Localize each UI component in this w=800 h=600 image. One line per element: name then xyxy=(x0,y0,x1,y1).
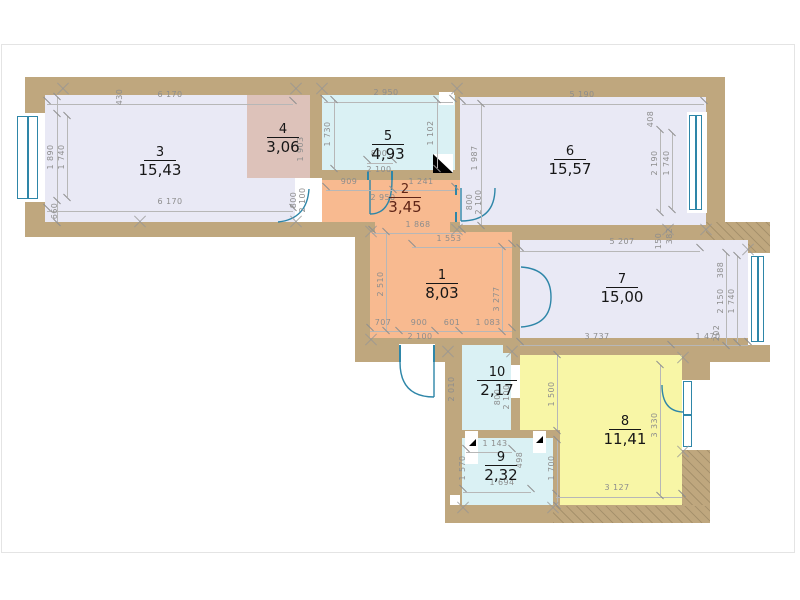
dim-label-room5-left: 1 730 xyxy=(324,122,332,147)
junction-cross xyxy=(455,500,471,516)
dim-line xyxy=(520,251,700,252)
dim-label-room6-right-a: 2 190 xyxy=(651,151,659,176)
dim-line xyxy=(502,247,503,331)
dim-line xyxy=(672,133,673,209)
dim-label-room3-offset-bottom: 660 xyxy=(51,203,59,219)
dim-line xyxy=(334,100,335,168)
dim-label-room1-bottom-3: 601 xyxy=(444,319,460,327)
junction-cross xyxy=(363,332,379,348)
room-8-label: 8 11,41 xyxy=(585,410,665,447)
dim-label-room2-seg-left: 909 xyxy=(341,178,357,186)
dim-line xyxy=(47,104,293,105)
room-9-number: 9 xyxy=(485,451,517,466)
dim-label-room2-bottom: 1 868 xyxy=(406,221,431,229)
dim-label-room5-right: 1 102 xyxy=(427,121,435,146)
junction-cross xyxy=(675,350,691,366)
room-10-number: 10 xyxy=(477,366,518,381)
dim-line xyxy=(557,440,558,505)
junction-cross xyxy=(545,500,561,516)
dim-label-room5-door-height: 2 100 xyxy=(367,166,392,174)
dim-label-room6-top: 5 190 xyxy=(570,91,595,99)
junction-cross xyxy=(440,344,456,360)
entrance-door-arc xyxy=(400,362,434,397)
dim-label-room3-left-a: 1 890 xyxy=(47,145,55,170)
room-8-area: 11,41 xyxy=(585,431,665,447)
room-9-label: 9 2,32 xyxy=(461,446,541,483)
dim-line xyxy=(47,211,293,212)
dim-line xyxy=(463,492,531,493)
dim-line xyxy=(737,256,738,342)
room-2-number: 2 xyxy=(389,183,421,198)
junction-cross xyxy=(55,81,71,97)
dim-label-room5-top: 2 950 xyxy=(374,89,399,97)
dim-line xyxy=(67,116,68,197)
dim-label-room6-door-width: 800 xyxy=(466,194,474,210)
dim-line xyxy=(386,232,387,330)
dim-label-room7-top: 5 207 xyxy=(610,238,635,246)
dim-label-room7-step-b: 382 xyxy=(666,228,674,244)
dim-label-room7-step-a: 150 xyxy=(655,233,663,249)
dim-label-room1-bottom-4: 1 083 xyxy=(476,319,501,327)
room-3-label: 3 15,43 xyxy=(120,141,200,178)
junction-cross xyxy=(288,214,304,230)
dim-label-room6-door-height: 2 100 xyxy=(475,190,483,215)
room-4-number: 4 xyxy=(267,123,299,138)
room-8-number: 8 xyxy=(609,415,641,430)
room-2-label: 2 3,45 xyxy=(365,178,445,215)
junction-cross xyxy=(449,81,465,97)
dim-label-room6-right-b: 1 740 xyxy=(663,151,671,176)
floor-plan-canvas: 6 170 6 170 2 950 800 2 100 909 1 241 2 … xyxy=(0,0,800,600)
room-6-number: 6 xyxy=(554,145,586,160)
dim-label-room1-bottom-2: 900 xyxy=(411,319,427,327)
dim-label-room7-right-offset: 388 xyxy=(717,262,725,278)
room-2-area: 3,45 xyxy=(365,199,445,215)
junction-cross xyxy=(740,242,756,258)
room-7-number: 7 xyxy=(606,273,638,288)
dim-label-room7-right-bottom: 202 xyxy=(713,325,721,341)
dim-label-room3-left-b: 1 740 xyxy=(58,145,66,170)
dim-label-room1-left: 2 510 xyxy=(377,272,385,297)
dim-label-room3-bottom: 6 170 xyxy=(158,198,183,206)
dim-label-room1-bottom-1: 707 xyxy=(375,319,391,327)
dim-line xyxy=(660,130,661,212)
room-1-label: 1 8,03 xyxy=(402,264,482,301)
room-10-area: 2,17 xyxy=(457,382,537,398)
room-4-label: 4 3,06 xyxy=(243,118,323,155)
dim-label-room1-top: 1 553 xyxy=(437,235,462,243)
junction-cross xyxy=(698,222,714,238)
junction-cross xyxy=(288,81,304,97)
dim-line xyxy=(462,104,704,105)
junction-cross xyxy=(675,444,691,460)
dim-label-room8-left-upper: 1 500 xyxy=(548,382,556,407)
dim-line xyxy=(370,331,512,332)
room-1-area: 8,03 xyxy=(402,285,482,301)
dim-label-room10-height: 2 010 xyxy=(448,377,456,402)
room-7-area: 15,00 xyxy=(582,289,662,305)
dim-label-room1-right: 3 277 xyxy=(493,287,501,312)
junction-cross xyxy=(504,344,520,360)
dim-label-room6-left: 1 987 xyxy=(471,146,479,171)
room-3-number: 3 xyxy=(144,146,176,161)
junction-cross xyxy=(314,81,330,97)
dim-label-room2-door-width: 800 xyxy=(290,192,298,208)
room-1-number: 1 xyxy=(426,269,458,284)
dim-line xyxy=(367,163,393,164)
dim-line xyxy=(324,102,453,103)
room-4-area: 3,06 xyxy=(243,139,323,155)
room-10-label: 10 2,17 xyxy=(457,361,537,398)
room-5-number: 5 xyxy=(372,130,404,145)
french-door-arcs-room7 xyxy=(521,267,551,327)
room-6-label: 6 15,57 xyxy=(530,140,610,177)
dim-line xyxy=(557,355,558,430)
room-7-label: 7 15,00 xyxy=(582,268,662,305)
room-9-area: 2,32 xyxy=(461,467,541,483)
junction-cross xyxy=(132,214,148,230)
dim-label-room3-top: 6 170 xyxy=(158,91,183,99)
balcony-door-arc-room8 xyxy=(662,385,684,412)
room-5-area: 4,93 xyxy=(348,146,428,162)
dim-label-room2-door-height: 2 100 xyxy=(299,188,307,213)
dim-label-room7-right-b: 1 740 xyxy=(728,289,736,314)
room-6-area: 15,57 xyxy=(530,161,610,177)
dim-label-room8-left-lower: 1 700 xyxy=(548,456,556,481)
dim-label-room6-right-offset: 408 xyxy=(647,111,655,127)
room-3-area: 15,43 xyxy=(120,162,200,178)
dim-label-room3-offset-top: 430 xyxy=(116,89,124,105)
dim-label-room1-door-height: 2 100 xyxy=(408,333,433,341)
dim-label-room7-right-a: 2 150 xyxy=(717,289,725,314)
junction-cross xyxy=(363,224,379,240)
dim-line xyxy=(520,345,748,346)
room-5-label: 5 4,93 xyxy=(348,125,428,162)
dim-line xyxy=(412,247,512,248)
dim-line xyxy=(437,100,438,168)
dim-label-room8-bottom: 3 127 xyxy=(605,484,630,492)
dim-label-room7-bottom-left: 3 737 xyxy=(585,333,610,341)
